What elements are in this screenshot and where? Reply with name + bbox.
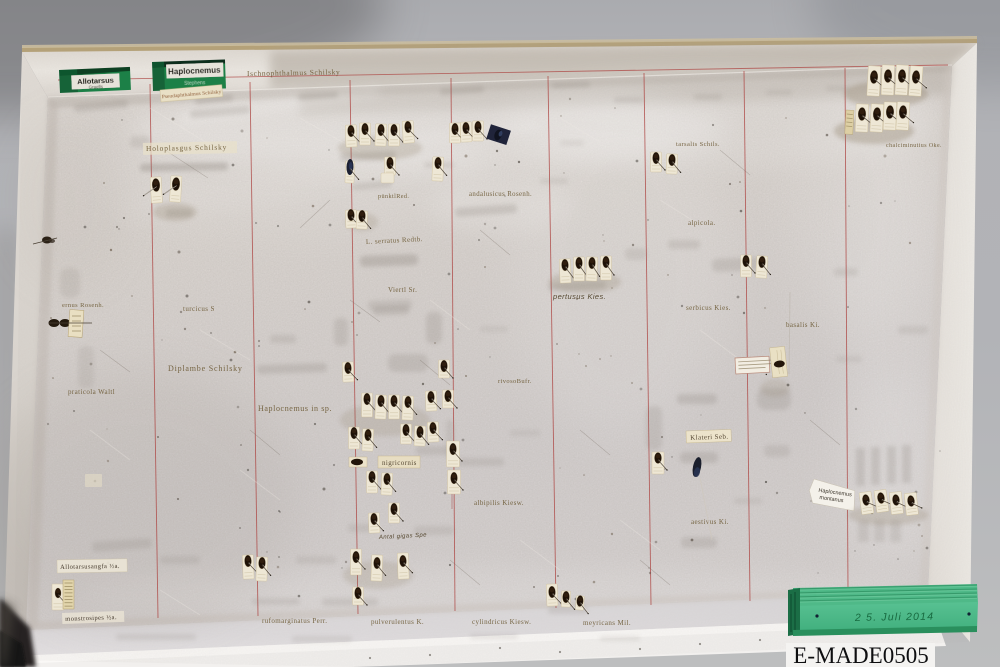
svg-text:Graells: Graells [89, 84, 104, 90]
svg-text:Allotarsusangfa ½a.: Allotarsusangfa ½a. [60, 563, 120, 571]
svg-text:Holoplasgus Schilsky: Holoplasgus Schilsky [146, 143, 227, 153]
svg-text:aestivus Ki.: aestivus Ki. [691, 518, 729, 526]
svg-text:ernus Rosenh.: ernus Rosenh. [62, 302, 104, 309]
svg-text:cylindricus Kiesw.: cylindricus Kiesw. [472, 618, 531, 626]
svg-text:chalciminutius Oke.: chalciminutius Oke. [886, 143, 942, 149]
svg-text:turcicus S: turcicus S [183, 305, 215, 313]
svg-text:tarsalis Schils.: tarsalis Schils. [676, 141, 720, 148]
svg-text:serbicus Kies.: serbicus Kies. [686, 304, 731, 312]
svg-text:Viertl Sr.: Viertl Sr. [388, 286, 417, 294]
svg-text:pünktlRed.: pünktlRed. [378, 193, 409, 200]
svg-text:praticola Waltl: praticola Waltl [68, 388, 115, 396]
svg-text:Klateri Seb.: Klateri Seb. [690, 433, 729, 442]
svg-text:2 5. Juli 2014: 2 5. Juli 2014 [854, 611, 934, 624]
svg-text:albipilis Kiesw.: albipilis Kiesw. [474, 499, 524, 507]
svg-text:Stephens: Stephens [184, 80, 206, 87]
svg-text:alpicola.: alpicola. [688, 219, 716, 227]
svg-text:pulverulentus K.: pulverulentus K. [371, 618, 424, 626]
svg-text:nigricornis: nigricornis [382, 459, 417, 467]
svg-text:Haplocnemus: Haplocnemus [168, 66, 221, 77]
svg-text:rufomarginatus Perr.: rufomarginatus Perr. [262, 617, 327, 625]
svg-text:Ischnophthalmus Schilsky: Ischnophthalmus Schilsky [247, 67, 341, 78]
svg-text:basalis Ki.: basalis Ki. [786, 321, 820, 329]
svg-text:E-MADE0505: E-MADE0505 [793, 643, 928, 667]
svg-text:Diplambe Schilsky: Diplambe Schilsky [168, 364, 243, 373]
svg-text:Haplocnemus in sp.: Haplocnemus in sp. [258, 404, 332, 413]
svg-text:meyricans Mil.: meyricans Mil. [583, 619, 631, 627]
svg-text:rivosoBufr.: rivosoBufr. [498, 378, 532, 385]
svg-text:andalusicus Rosenh.: andalusicus Rosenh. [469, 191, 532, 198]
svg-text:pertusus Kies.: pertusus Kies. [552, 292, 606, 301]
